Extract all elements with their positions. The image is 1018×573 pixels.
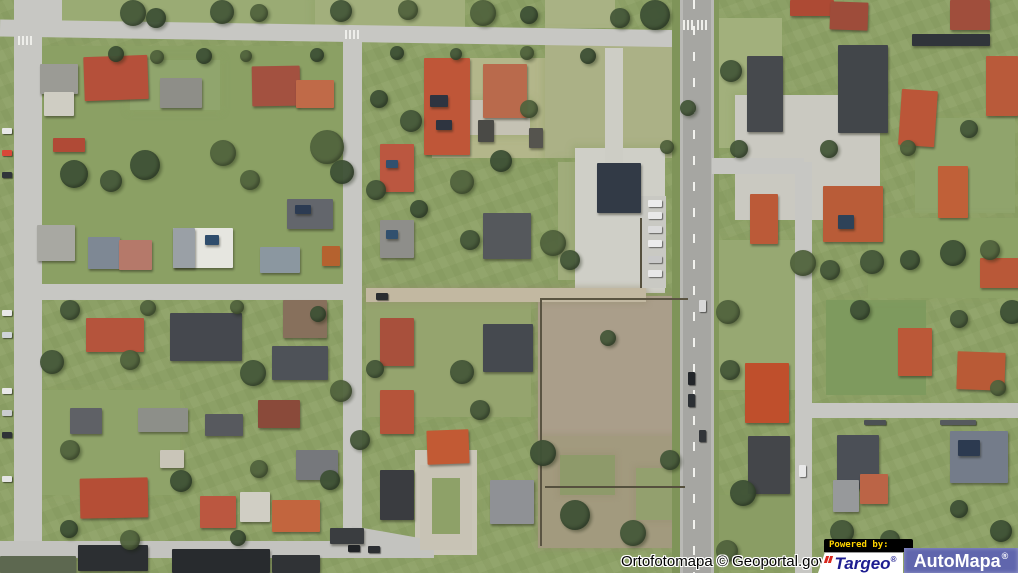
map-line — [693, 0, 695, 573]
map-house — [747, 56, 783, 132]
map-tree — [520, 100, 538, 118]
map-tree — [450, 360, 474, 384]
map-house — [750, 194, 778, 244]
map-house — [37, 225, 75, 261]
map-house — [426, 429, 469, 464]
map-tree — [130, 150, 160, 180]
map-tree — [210, 0, 234, 24]
map-house — [252, 66, 301, 107]
map-tree — [990, 520, 1012, 542]
map-tree — [60, 160, 88, 188]
map-house — [296, 80, 334, 108]
map-road — [795, 162, 812, 573]
map-house — [170, 313, 242, 361]
map-tree — [860, 250, 884, 274]
map-tree — [370, 90, 388, 108]
map-house — [838, 215, 854, 229]
map-house — [478, 120, 494, 142]
map-road — [605, 48, 623, 166]
map-tree — [250, 4, 268, 22]
map-tree — [398, 0, 418, 20]
map-tree — [900, 250, 920, 270]
map-car — [2, 172, 12, 178]
map-tree — [240, 360, 266, 386]
map-tree — [60, 520, 78, 538]
map-house — [745, 363, 789, 423]
map-tree — [400, 110, 422, 132]
map-tree — [100, 170, 122, 192]
map-tree — [820, 140, 838, 158]
map-house — [430, 95, 448, 107]
map-car — [648, 200, 662, 207]
map-line — [701, 20, 703, 30]
map-house — [490, 480, 534, 524]
map-car — [864, 420, 886, 425]
map-house — [833, 480, 859, 512]
map-house — [205, 414, 243, 436]
map-house — [386, 160, 398, 168]
map-lot — [560, 455, 615, 495]
map-house — [70, 408, 102, 434]
map-house — [483, 213, 531, 259]
map-tree — [580, 48, 596, 64]
map-lot — [538, 296, 688, 436]
map-house — [272, 346, 328, 380]
targeo-logo-text: Targeo — [835, 555, 891, 572]
map-tree — [730, 480, 756, 506]
map-house — [380, 470, 414, 520]
map-tree — [610, 8, 630, 28]
map-house — [138, 408, 188, 432]
map-road — [712, 158, 804, 174]
map-house — [986, 56, 1018, 116]
map-line — [691, 20, 693, 30]
map-house — [78, 545, 148, 571]
map-house — [838, 45, 888, 133]
map-tree — [310, 306, 326, 322]
map-tree — [600, 330, 616, 346]
map-car — [799, 465, 806, 477]
map-tree — [240, 170, 260, 190]
map-car — [940, 420, 976, 425]
map-tree — [470, 400, 490, 420]
map-tree — [350, 430, 370, 450]
map-car — [648, 226, 662, 233]
map-car — [2, 388, 12, 394]
map-tree — [960, 120, 978, 138]
map-line — [540, 298, 688, 300]
map-house — [950, 431, 1008, 483]
map-car — [2, 128, 12, 134]
map-tree — [40, 350, 64, 374]
map-house — [980, 258, 1018, 288]
map-house — [938, 166, 968, 218]
map-tree — [240, 50, 252, 62]
map-car — [648, 212, 662, 219]
map-house — [483, 324, 533, 372]
map-tree — [520, 46, 534, 60]
map-line — [687, 20, 689, 30]
map-tree — [850, 300, 870, 320]
map-tree — [716, 300, 740, 324]
map-tree — [520, 6, 538, 24]
map-tree — [366, 360, 384, 378]
map-car — [376, 293, 388, 300]
map-line — [26, 36, 28, 45]
map-line — [683, 20, 685, 30]
map-house — [240, 492, 270, 522]
map-tree — [450, 170, 474, 194]
map-tree — [470, 0, 496, 26]
map-tree — [720, 60, 742, 82]
map-house — [386, 230, 398, 239]
map-tree — [170, 470, 192, 492]
map-house — [597, 163, 641, 213]
map-tree — [390, 46, 404, 60]
map-house — [912, 34, 990, 46]
map-tree — [210, 140, 236, 166]
map-car — [648, 240, 662, 247]
map-line — [18, 36, 20, 45]
map-tree — [950, 310, 968, 328]
map-tree — [60, 300, 80, 320]
map-house — [272, 555, 320, 573]
map-tree — [120, 530, 140, 550]
map-tree — [140, 300, 156, 316]
map-house — [380, 390, 414, 434]
map-house — [860, 474, 888, 504]
map-tree — [460, 230, 480, 250]
automapa-registered-mark: ® — [1002, 552, 1009, 561]
map-tree — [146, 8, 166, 28]
map-road — [432, 478, 460, 534]
map-line — [30, 36, 32, 45]
map-tree — [250, 460, 268, 478]
map-car — [688, 372, 695, 385]
map-line — [345, 30, 347, 39]
map-tree — [660, 450, 680, 470]
map-house — [258, 400, 300, 428]
map-car — [2, 432, 12, 438]
map-road — [714, 0, 719, 573]
map-tree — [366, 180, 386, 200]
map-car — [648, 256, 662, 263]
map-car — [368, 546, 380, 553]
map-house — [380, 318, 414, 366]
map-tree — [410, 200, 428, 218]
map-house — [790, 0, 834, 16]
map-tree — [120, 0, 146, 26]
map-canvas[interactable]: Ortofotomapa © Geoportal.gov.pl Powered … — [0, 0, 1018, 573]
map-house — [53, 138, 85, 152]
map-line — [540, 298, 542, 546]
map-field — [545, 0, 615, 28]
map-car — [2, 476, 12, 482]
map-house — [86, 318, 144, 352]
map-tree — [310, 130, 344, 164]
map-tree — [790, 250, 816, 276]
map-tree — [60, 440, 80, 460]
map-house — [80, 477, 149, 518]
map-tree — [490, 150, 512, 172]
map-line — [705, 20, 707, 30]
map-house — [44, 92, 74, 116]
map-tree — [196, 48, 212, 64]
map-house — [40, 64, 78, 94]
map-tree — [720, 360, 740, 380]
map-tree — [620, 520, 646, 546]
map-line — [640, 218, 642, 288]
map-tree — [120, 350, 140, 370]
map-house — [287, 199, 333, 229]
map-tree — [680, 100, 696, 116]
map-house — [958, 440, 980, 456]
map-tree — [330, 380, 352, 402]
map-line — [357, 30, 359, 39]
map-house — [260, 247, 300, 273]
map-house — [160, 450, 184, 468]
map-tree — [230, 300, 244, 314]
map-tree — [660, 140, 674, 154]
map-house — [830, 1, 869, 30]
map-tree — [730, 140, 748, 158]
map-road — [40, 0, 62, 28]
map-house — [88, 237, 120, 269]
map-road — [680, 0, 714, 573]
map-house — [160, 78, 202, 108]
map-house — [173, 228, 195, 268]
map-tree — [560, 250, 580, 270]
map-house — [436, 120, 452, 130]
map-tree — [320, 470, 340, 490]
targeo-registered-mark: ® — [891, 556, 897, 564]
map-tree — [1000, 300, 1018, 324]
map-tree — [230, 530, 246, 546]
map-tree — [108, 46, 124, 62]
map-house — [950, 0, 990, 30]
powered-by-label: Powered by: — [824, 539, 913, 552]
map-car — [699, 430, 706, 442]
map-house — [529, 128, 543, 148]
map-road — [711, 0, 714, 573]
map-house — [330, 528, 364, 544]
map-house — [119, 240, 152, 270]
map-road — [28, 284, 348, 300]
map-tree — [310, 48, 324, 62]
automapa-logo-text: AutoMapa — [914, 552, 1001, 570]
map-tree — [940, 240, 966, 266]
map-tree — [820, 260, 840, 280]
map-house — [748, 436, 790, 494]
map-car — [348, 545, 360, 552]
map-line — [349, 30, 351, 39]
map-house — [898, 89, 938, 147]
map-tree — [950, 500, 968, 518]
map-road — [803, 403, 1018, 418]
map-car — [2, 150, 12, 156]
map-house — [295, 205, 311, 214]
targeo-logo[interactable]: Targeo® — [818, 552, 903, 573]
map-tree — [900, 140, 916, 156]
map-line — [22, 36, 24, 45]
map-line — [545, 486, 685, 488]
map-car — [699, 300, 706, 312]
map-house — [200, 496, 236, 528]
map-house — [898, 328, 932, 376]
map-tree — [560, 500, 590, 530]
map-house — [823, 186, 883, 242]
map-car — [2, 410, 12, 416]
map-tree — [640, 0, 670, 30]
map-tree — [980, 240, 1000, 260]
automapa-logo[interactable]: AutoMapa® — [904, 548, 1018, 573]
map-line — [353, 30, 355, 39]
map-car — [688, 394, 695, 407]
map-tree — [450, 48, 462, 60]
map-house — [380, 144, 414, 192]
map-house — [0, 556, 76, 573]
map-house — [380, 220, 414, 258]
map-house — [322, 246, 340, 266]
map-attribution: Ortofotomapa © Geoportal.gov.pl — [621, 553, 841, 570]
map-house — [172, 549, 270, 573]
map-tree — [330, 0, 352, 22]
map-tree — [990, 380, 1006, 396]
map-line — [697, 20, 699, 30]
map-car — [648, 270, 662, 277]
map-house — [205, 235, 219, 245]
map-car — [2, 310, 12, 316]
map-house — [272, 500, 320, 532]
map-tree — [330, 160, 354, 184]
map-tree — [150, 50, 164, 64]
map-tree — [530, 440, 556, 466]
map-car — [2, 332, 12, 338]
